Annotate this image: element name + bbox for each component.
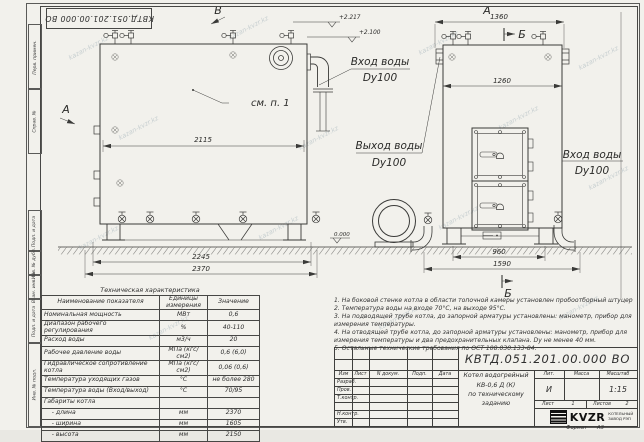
format-value: А3 [597, 425, 604, 431]
tb-scale-value: 1:15 [599, 378, 637, 400]
spec-cell: Диапазон рабочего регулирования [42, 321, 160, 335]
spec-section: Техническая характеристика Наименование … [41, 286, 259, 442]
spec-cell: 0,6 [208, 310, 260, 321]
spec-cell: мм [160, 419, 208, 430]
margin-strip-podp-data-1: Подп. и дата [28, 210, 42, 252]
margin-strip-perv-primen: Перв. примен. [28, 24, 42, 90]
table-row: Диапазон рабочего регулирования%40-110 [42, 321, 260, 335]
spec-cell: Гидравлическое сопротивление котла [42, 361, 160, 375]
spec-cell: МВт [160, 310, 208, 321]
table-row: - ширинамм1605 [42, 419, 260, 430]
note-line: 1. На боковой стенке котла в области топ… [334, 297, 636, 305]
product-line1: Котел водогрейный [464, 371, 529, 380]
spec-cell: не более 280 [208, 375, 260, 386]
tb-scale-header: Масштаб [599, 370, 637, 378]
spec-cell: °С [160, 386, 208, 397]
margin-strip-inv-podl: Инв. № подл. [28, 342, 42, 427]
spec-cell: % [160, 321, 208, 335]
table-row: - высотамм2150 [42, 430, 260, 441]
tb-row-razrab: Разраб. [337, 379, 356, 385]
spec-cell: 2370 [208, 408, 260, 419]
spec-cell: - ширина [42, 419, 160, 430]
spec-table: Наименование показателя Единицы измерени… [41, 295, 260, 442]
tb-mass-header: Масса [564, 370, 599, 378]
strip-label: Инв. № подл. [33, 369, 38, 401]
tb-row-prov: Пров. [337, 387, 351, 393]
drawing-sheet: kazan-kvzr.kz kazan-kvzr.kz kazan-kvzr.k… [0, 0, 644, 430]
note-line: 4. На отводящей трубе котла, до запорной… [334, 329, 636, 345]
tb-col-izm: Изм [335, 370, 352, 378]
spec-cell: 70/95 [208, 386, 260, 397]
spec-header-units: Единицы измерения [160, 296, 208, 310]
tb-row-utv: Утв. [337, 419, 347, 425]
top-doc-number-stamp: КВТД.051.201.00.000 ВО [46, 8, 152, 29]
spec-cell: Габариты котла [42, 397, 160, 408]
margin-strip-sprav-no: Справ. № [28, 88, 42, 154]
manufacturer-logo: KVZR КОТЕЛЬНЫЙ ЗАВОД РЭП [534, 408, 643, 426]
kvzr-emblem-icon [550, 410, 567, 424]
strip-label: Справ. № [33, 110, 38, 132]
table-row: Рабочее давление водыМПа (кгс/см2)0,6 (6… [42, 346, 260, 360]
spec-cell: °С [160, 375, 208, 386]
tb-sheets-label: Листов [587, 400, 617, 408]
strip-label: Перв. примен. [33, 40, 38, 75]
tb-row-nkontr: Н.контр. [337, 411, 359, 417]
title-block: КВТД.051.201.00.000 ВО Изм Лист N докум.… [334, 347, 638, 427]
spec-cell: 2150 [208, 430, 260, 441]
spec-header-value: Значение [208, 296, 260, 310]
format-note: ФорматА3 [566, 425, 614, 431]
tb-sheets-value: 2 [619, 400, 635, 408]
margin-strip-podp-data-2: Подп. и дата [28, 298, 42, 344]
product-line3: по техническому заданию [458, 390, 534, 409]
spec-cell: 40-110 [208, 321, 260, 335]
strip-label: Подп. и дата [33, 305, 38, 336]
spec-cell [208, 397, 260, 408]
tb-col-ndocum: N докум. [369, 370, 407, 378]
tb-col-list: Лист [352, 370, 369, 378]
top-doc-number-text: КВТД.051.201.00.000 ВО [45, 14, 154, 23]
spec-title: Техническая характеристика [41, 286, 259, 294]
logo-subtitle: КОТЕЛЬНЫЙ ЗАВОД РЭП [608, 412, 633, 422]
logo-sub-line2: ЗАВОД РЭП [608, 417, 633, 422]
spec-cell: Температура воды (Вход/выход) [42, 386, 160, 397]
product-line2: КВ-0,6 Д (К) [477, 381, 516, 390]
spec-cell: м3/ч [160, 335, 208, 346]
tb-lit-value: И [534, 378, 564, 400]
spec-cell: 0,06 (0,6) [208, 361, 260, 375]
product-name: Котел водогрейный КВ-0,6 Д (К) по технич… [458, 370, 534, 410]
spec-cell: МПа (кгс/см2) [160, 361, 208, 375]
spec-cell: - длина [42, 408, 160, 419]
spec-cell: Температура уходящих газов [42, 375, 160, 386]
spec-cell: 0,6 (6,0) [208, 346, 260, 360]
margin-strip-vzam-inv: Взам. инв. № [28, 274, 42, 300]
table-row: Температура уходящих газов°Сне более 280 [42, 375, 260, 386]
table-row: Гидравлическое сопротивление котлаМПа (к… [42, 361, 260, 375]
spec-cell: Рабочее давление воды [42, 346, 160, 360]
spec-cell: Расход воды [42, 335, 160, 346]
spec-cell: - высота [42, 430, 160, 441]
spec-cell: 1605 [208, 419, 260, 430]
note-line: 2. Температура воды на входе 70°С, на вы… [334, 305, 636, 313]
spec-cell: МПа (кгс/см2) [160, 346, 208, 360]
spec-header-row: Наименование показателя Единицы измерени… [42, 296, 260, 310]
note-line: 3. На подводящей трубе котла, до запорно… [334, 313, 636, 329]
table-row: Габариты котла [42, 397, 260, 408]
table-row: - длинамм2370 [42, 408, 260, 419]
logo-text: KVZR [570, 411, 605, 424]
spec-cell [160, 397, 208, 408]
tb-row-tkontr: Т.контр. [337, 395, 358, 401]
format-label: Формат [566, 425, 587, 431]
technical-notes: 1. На боковой стенке котла в области топ… [334, 297, 636, 353]
tb-col-podp: Подп. [407, 370, 432, 378]
doc-number: КВТД.051.201.00.000 ВО [458, 348, 637, 370]
spec-cell: 20 [208, 335, 260, 346]
tb-sheet-label: Лист [535, 400, 561, 408]
table-row: Температура воды (Вход/выход)°С70/95 [42, 386, 260, 397]
tb-lit-header: Лит. [534, 370, 564, 378]
table-row: Расход водым3/ч20 [42, 335, 260, 346]
tb-sheet-value: 1 [563, 400, 583, 408]
tb-col-data: Дата [432, 370, 458, 378]
spec-header-name: Наименование показателя [42, 296, 160, 310]
strip-label: Подп. и дата [33, 215, 38, 246]
spec-cell: мм [160, 430, 208, 441]
spec-cell: мм [160, 408, 208, 419]
